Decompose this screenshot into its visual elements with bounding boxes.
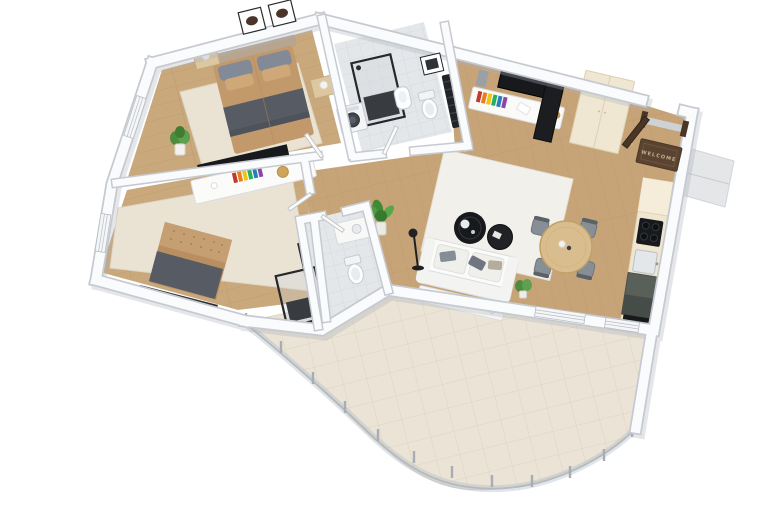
cooktop — [636, 218, 664, 247]
sofa-pillow — [439, 250, 456, 262]
railing-post — [280, 341, 282, 353]
railing-post — [451, 466, 453, 478]
table-decor — [559, 241, 565, 247]
railing-post — [344, 401, 346, 413]
burner — [640, 232, 648, 240]
railing-post — [413, 451, 415, 463]
dining-table — [540, 221, 592, 273]
tall-cabinet — [638, 178, 673, 216]
railing-post — [377, 429, 379, 441]
railing-post — [531, 475, 533, 487]
bathroom-1-artwork — [420, 53, 444, 75]
burner — [650, 234, 658, 242]
railing-post — [491, 475, 493, 487]
burner — [642, 222, 650, 230]
railing-post — [312, 372, 314, 384]
decor-plate — [461, 220, 470, 229]
railing-post — [603, 449, 605, 461]
floor-plan-rendering: WELCOME — [0, 0, 770, 510]
planter-pot — [520, 291, 527, 298]
kitchen-sink — [632, 249, 657, 274]
decor-dot — [471, 230, 475, 234]
railing-post — [569, 466, 571, 478]
burner — [652, 223, 660, 231]
coffee-table-small — [488, 225, 513, 250]
planter-pot — [175, 144, 185, 155]
sofa-pillow — [488, 260, 503, 270]
coffee-table-large — [454, 212, 486, 244]
table-decor — [567, 246, 571, 250]
